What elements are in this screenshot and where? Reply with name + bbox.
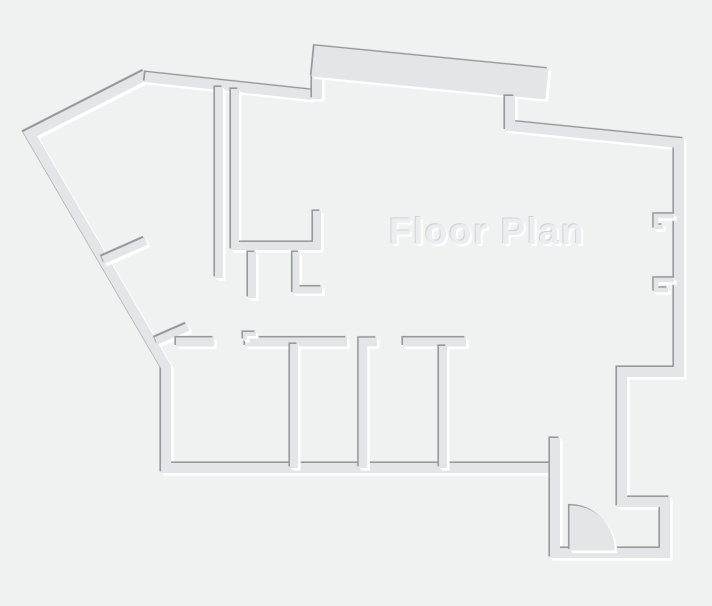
floor-plan-title: Floor Plan xyxy=(389,211,585,253)
canopy-thick-wall xyxy=(313,61,547,84)
floor-plan-page: Floor Plan xyxy=(0,0,712,606)
closet-stub-right xyxy=(296,252,322,290)
outer-wall-north xyxy=(145,77,312,95)
window-jamb-lower xyxy=(656,280,674,290)
entry-door-swing xyxy=(571,507,613,549)
angled-wall-upper xyxy=(103,241,146,260)
closet-wall xyxy=(235,89,317,246)
outer-wall-east xyxy=(510,96,679,553)
window-jamb-upper xyxy=(656,216,674,227)
floor-plan-drawing xyxy=(0,0,712,606)
room-divider-2 xyxy=(363,342,377,468)
